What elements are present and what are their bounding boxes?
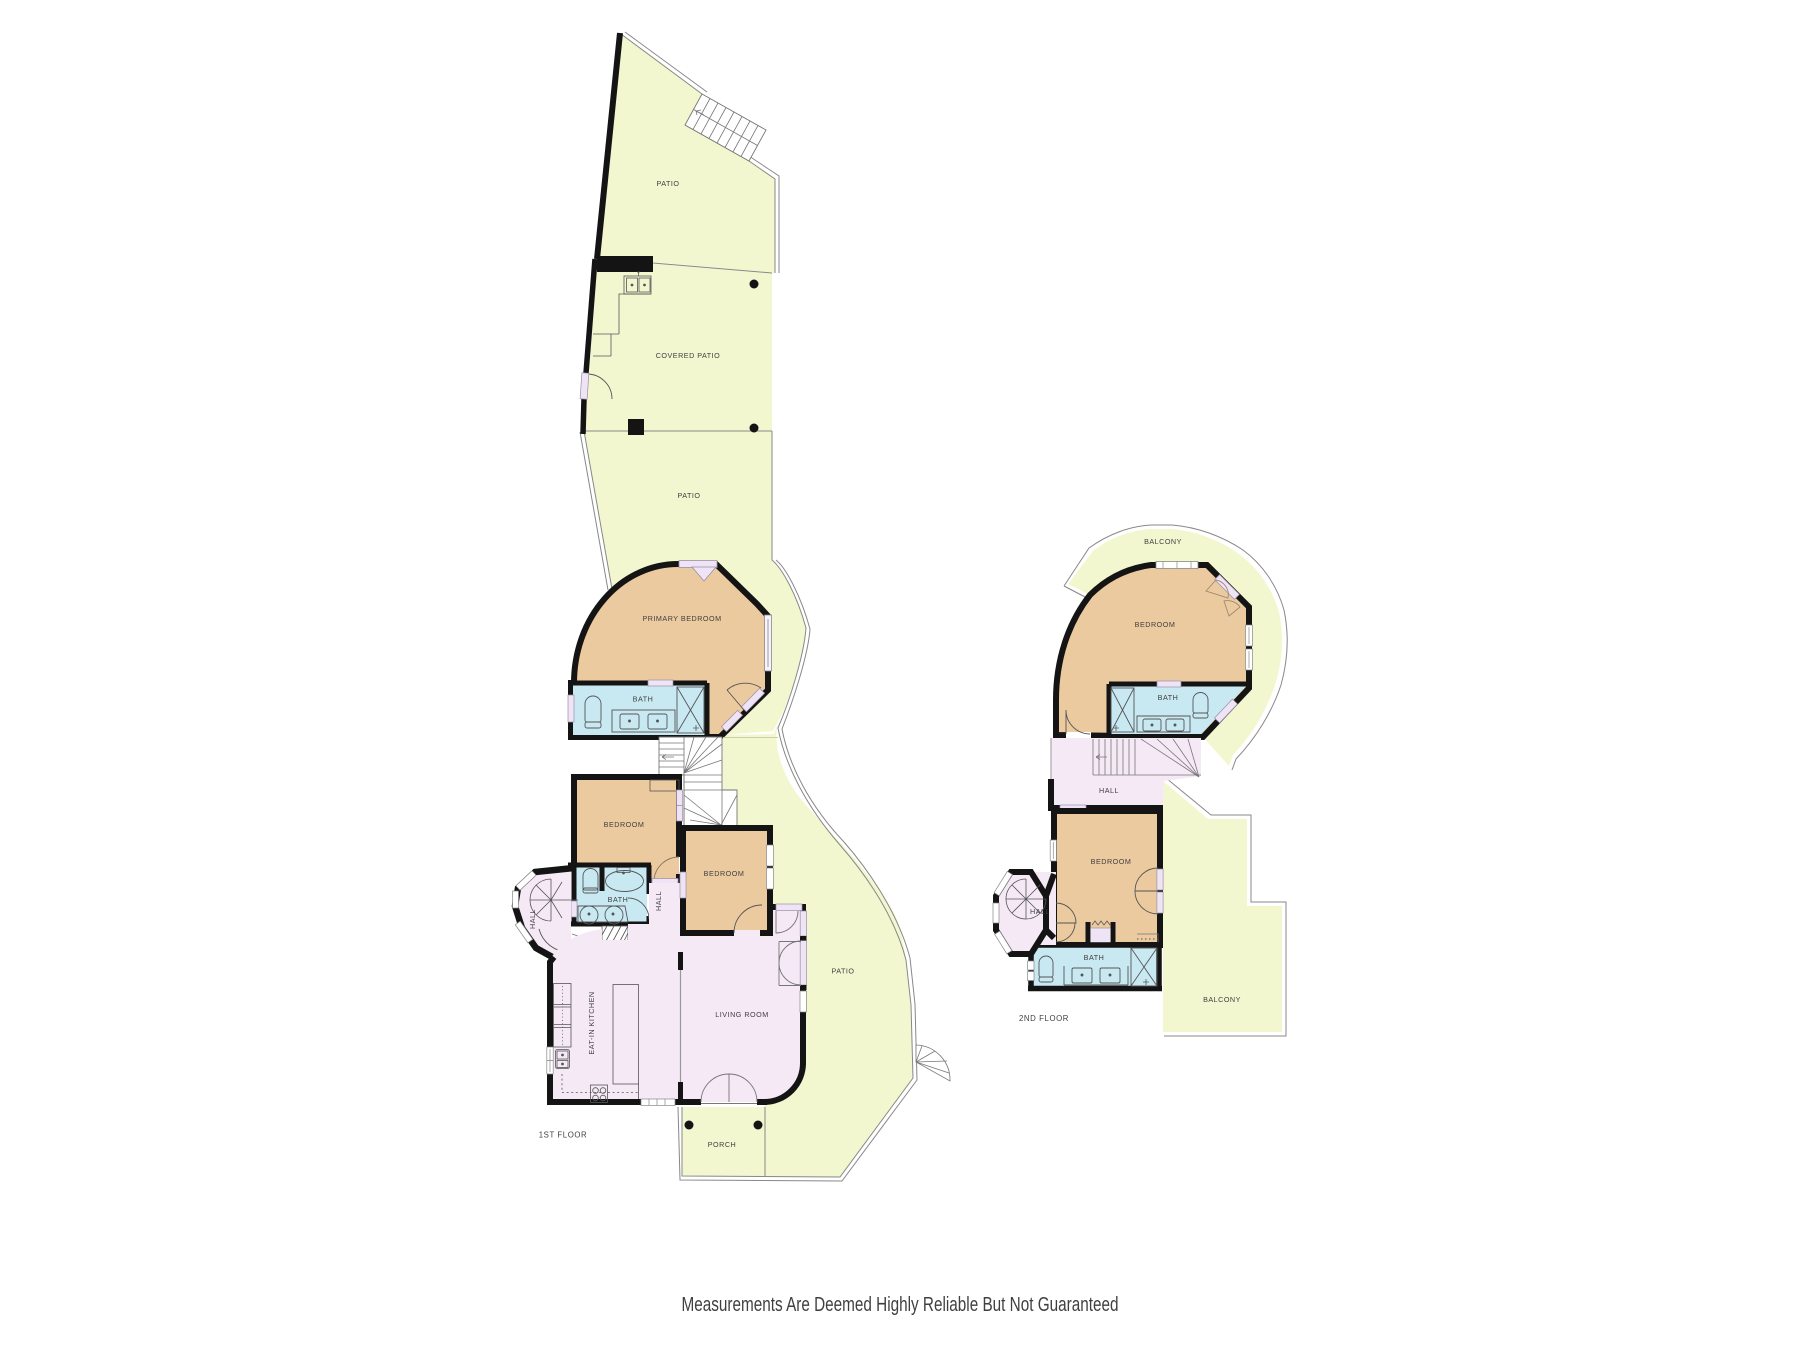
svg-text:PRIMARY BEDROOM: PRIMARY BEDROOM xyxy=(642,614,721,623)
svg-text:BEDROOM: BEDROOM xyxy=(604,820,645,829)
svg-text:PATIO: PATIO xyxy=(678,491,701,500)
svg-text:COVERED PATIO: COVERED PATIO xyxy=(656,351,721,360)
svg-text:HALL: HALL xyxy=(528,909,537,929)
svg-text:BEDROOM: BEDROOM xyxy=(704,869,745,878)
svg-text:BATH: BATH xyxy=(1084,953,1105,962)
svg-text:BEDROOM: BEDROOM xyxy=(1091,857,1132,866)
svg-text:BATH: BATH xyxy=(1158,693,1179,702)
svg-text:BATH: BATH xyxy=(608,895,629,904)
svg-text:BATH: BATH xyxy=(633,695,654,704)
svg-text:HALL: HALL xyxy=(654,891,663,911)
svg-text:BEDROOM: BEDROOM xyxy=(1135,620,1176,629)
svg-text:LIVING ROOM: LIVING ROOM xyxy=(715,1010,768,1019)
svg-text:BALCONY: BALCONY xyxy=(1203,995,1241,1004)
svg-text:BALCONY: BALCONY xyxy=(1144,537,1182,546)
svg-text:PORCH: PORCH xyxy=(708,1140,736,1149)
svg-text:EAT-IN KITCHEN: EAT-IN KITCHEN xyxy=(587,991,596,1054)
svg-text:PATIO: PATIO xyxy=(657,179,680,188)
svg-text:Measurements Are Deemed Highly: Measurements Are Deemed Highly Reliable … xyxy=(682,1294,1119,1316)
svg-text:HALL: HALL xyxy=(1099,786,1119,795)
svg-text:2ND FLOOR: 2ND FLOOR xyxy=(1019,1014,1069,1023)
svg-text:1ST FLOOR: 1ST FLOOR xyxy=(539,1131,588,1140)
svg-text:HALL: HALL xyxy=(1030,907,1050,916)
svg-text:PATIO: PATIO xyxy=(832,967,855,976)
